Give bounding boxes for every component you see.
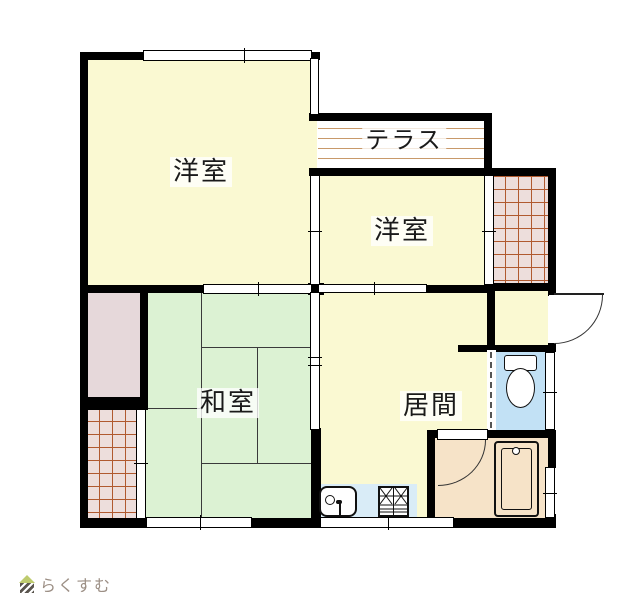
bathtub-drain-icon bbox=[512, 447, 520, 455]
tatami-line bbox=[201, 463, 315, 464]
label-western-room-2: 洋室 bbox=[371, 216, 433, 246]
bath-door-opening bbox=[437, 429, 488, 440]
entrance-hall-floor bbox=[492, 287, 548, 345]
window bbox=[203, 284, 312, 294]
site-logo-text: らくすむ bbox=[40, 572, 112, 596]
window bbox=[136, 409, 146, 519]
faucet-head bbox=[336, 500, 342, 504]
label-living-room: 居間 bbox=[400, 391, 462, 421]
tatami-line bbox=[201, 347, 315, 348]
porch-tile-floor bbox=[86, 408, 136, 518]
gas-stove-icon bbox=[378, 486, 409, 517]
toilet-bowl-icon bbox=[506, 368, 535, 408]
wall bbox=[427, 430, 435, 528]
bathtub-inner bbox=[501, 448, 532, 510]
wall bbox=[80, 518, 148, 528]
toilet-door bbox=[487, 350, 496, 430]
window bbox=[545, 352, 555, 430]
sliding-door bbox=[310, 292, 320, 430]
label-terrace: テラス bbox=[362, 127, 446, 155]
wall bbox=[309, 113, 492, 121]
wall bbox=[458, 345, 556, 352]
house-icon bbox=[19, 575, 35, 594]
floor-plan: 洋室 テラス 洋室 和室 居間 らくすむ bbox=[0, 0, 632, 604]
wall bbox=[484, 113, 492, 176]
window bbox=[320, 517, 454, 528]
tatami-line bbox=[146, 408, 202, 409]
wall bbox=[548, 343, 556, 352]
veranda-tile-floor bbox=[492, 176, 548, 283]
wall bbox=[426, 285, 490, 293]
label-western-room-1: 洋室 bbox=[170, 157, 232, 187]
wall bbox=[548, 172, 556, 293]
wall bbox=[309, 168, 556, 176]
wall bbox=[140, 285, 148, 409]
wall bbox=[80, 52, 146, 60]
label-japanese-room: 和室 bbox=[197, 388, 259, 418]
window bbox=[484, 175, 494, 285]
wall bbox=[548, 430, 556, 468]
faucet-icon bbox=[339, 502, 341, 517]
entrance-door-swing-arc bbox=[554, 295, 603, 344]
sliding-door bbox=[310, 175, 320, 285]
site-logo: らくすむ bbox=[19, 572, 112, 596]
window bbox=[143, 50, 312, 61]
closet-floor bbox=[86, 289, 140, 397]
wall bbox=[488, 283, 556, 291]
window bbox=[146, 517, 252, 528]
wall bbox=[453, 518, 556, 528]
sink-drain-icon bbox=[325, 495, 335, 505]
wall bbox=[487, 285, 495, 350]
window bbox=[318, 284, 427, 293]
window bbox=[310, 58, 319, 115]
window bbox=[545, 467, 555, 518]
